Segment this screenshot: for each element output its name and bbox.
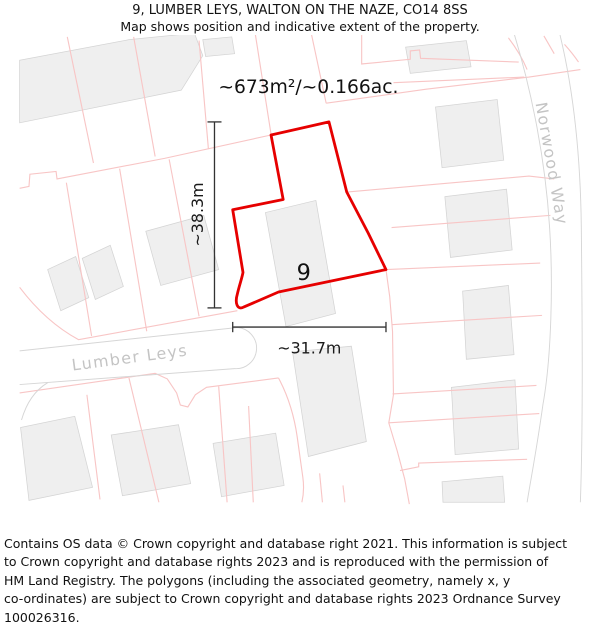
parcel-line: [320, 473, 323, 502]
parcel-line: [508, 38, 527, 70]
parcel-line: [20, 373, 279, 407]
width-dimension-label: ~31.7m: [277, 339, 341, 358]
building: [442, 476, 505, 502]
parcel-line: [20, 287, 238, 339]
road-junction-curve: [21, 383, 47, 420]
road-norwood-way-right: [559, 35, 582, 502]
copyright-line: to Crown copyright and database rights 2…: [0, 553, 600, 571]
building: [406, 41, 471, 74]
building: [21, 416, 93, 500]
page: 9, LUMBER LEYS, WALTON ON THE NAZE, CO14…: [0, 0, 600, 625]
area-label: ~673m²/~0.166ac.: [218, 77, 398, 98]
map-canvas: Lumber Leys Norwood Way ~38.3m ~31.7m ~6…: [0, 35, 600, 535]
copyright-line: co-ordinates) are subject to Crown copyr…: [0, 590, 600, 608]
building: [203, 37, 235, 57]
building: [445, 189, 512, 257]
map-header: 9, LUMBER LEYS, WALTON ON THE NAZE, CO14…: [0, 0, 600, 35]
building: [213, 433, 284, 497]
building: [436, 99, 504, 167]
plot-number-label: 9: [297, 260, 311, 286]
copyright-line: Contains OS data © Crown copyright and d…: [0, 535, 600, 553]
copyright-notice: Contains OS data © Crown copyright and d…: [0, 535, 600, 625]
parcel-line: [199, 41, 208, 149]
building: [82, 245, 123, 299]
street-label-lumber-leys: Lumber Leys: [71, 340, 189, 374]
parcel-line: [386, 263, 540, 270]
street-label-norwood-way: Norwood Way: [532, 101, 572, 227]
buildings-layer: [20, 35, 519, 502]
parcel-line: [400, 459, 527, 470]
page-subtitle: Map shows position and indicative extent…: [0, 18, 600, 34]
parcel-line: [544, 36, 554, 54]
property-map: Lumber Leys Norwood Way ~38.3m ~31.7m ~6…: [0, 35, 600, 535]
building: [20, 35, 203, 123]
parcel-line: [20, 135, 271, 188]
height-dimension-label: ~38.3m: [188, 182, 207, 246]
copyright-line: HM Land Registry. The polygons (includin…: [0, 572, 600, 590]
page-title: 9, LUMBER LEYS, WALTON ON THE NAZE, CO14…: [0, 0, 600, 18]
parcel-line: [120, 169, 147, 332]
building: [293, 346, 367, 456]
building: [463, 285, 514, 359]
copyright-line: 100026316.: [0, 609, 600, 627]
parcel-line: [343, 485, 345, 502]
parcel-line: [564, 44, 578, 62]
parcel-line: [347, 176, 554, 192]
building: [111, 425, 190, 496]
